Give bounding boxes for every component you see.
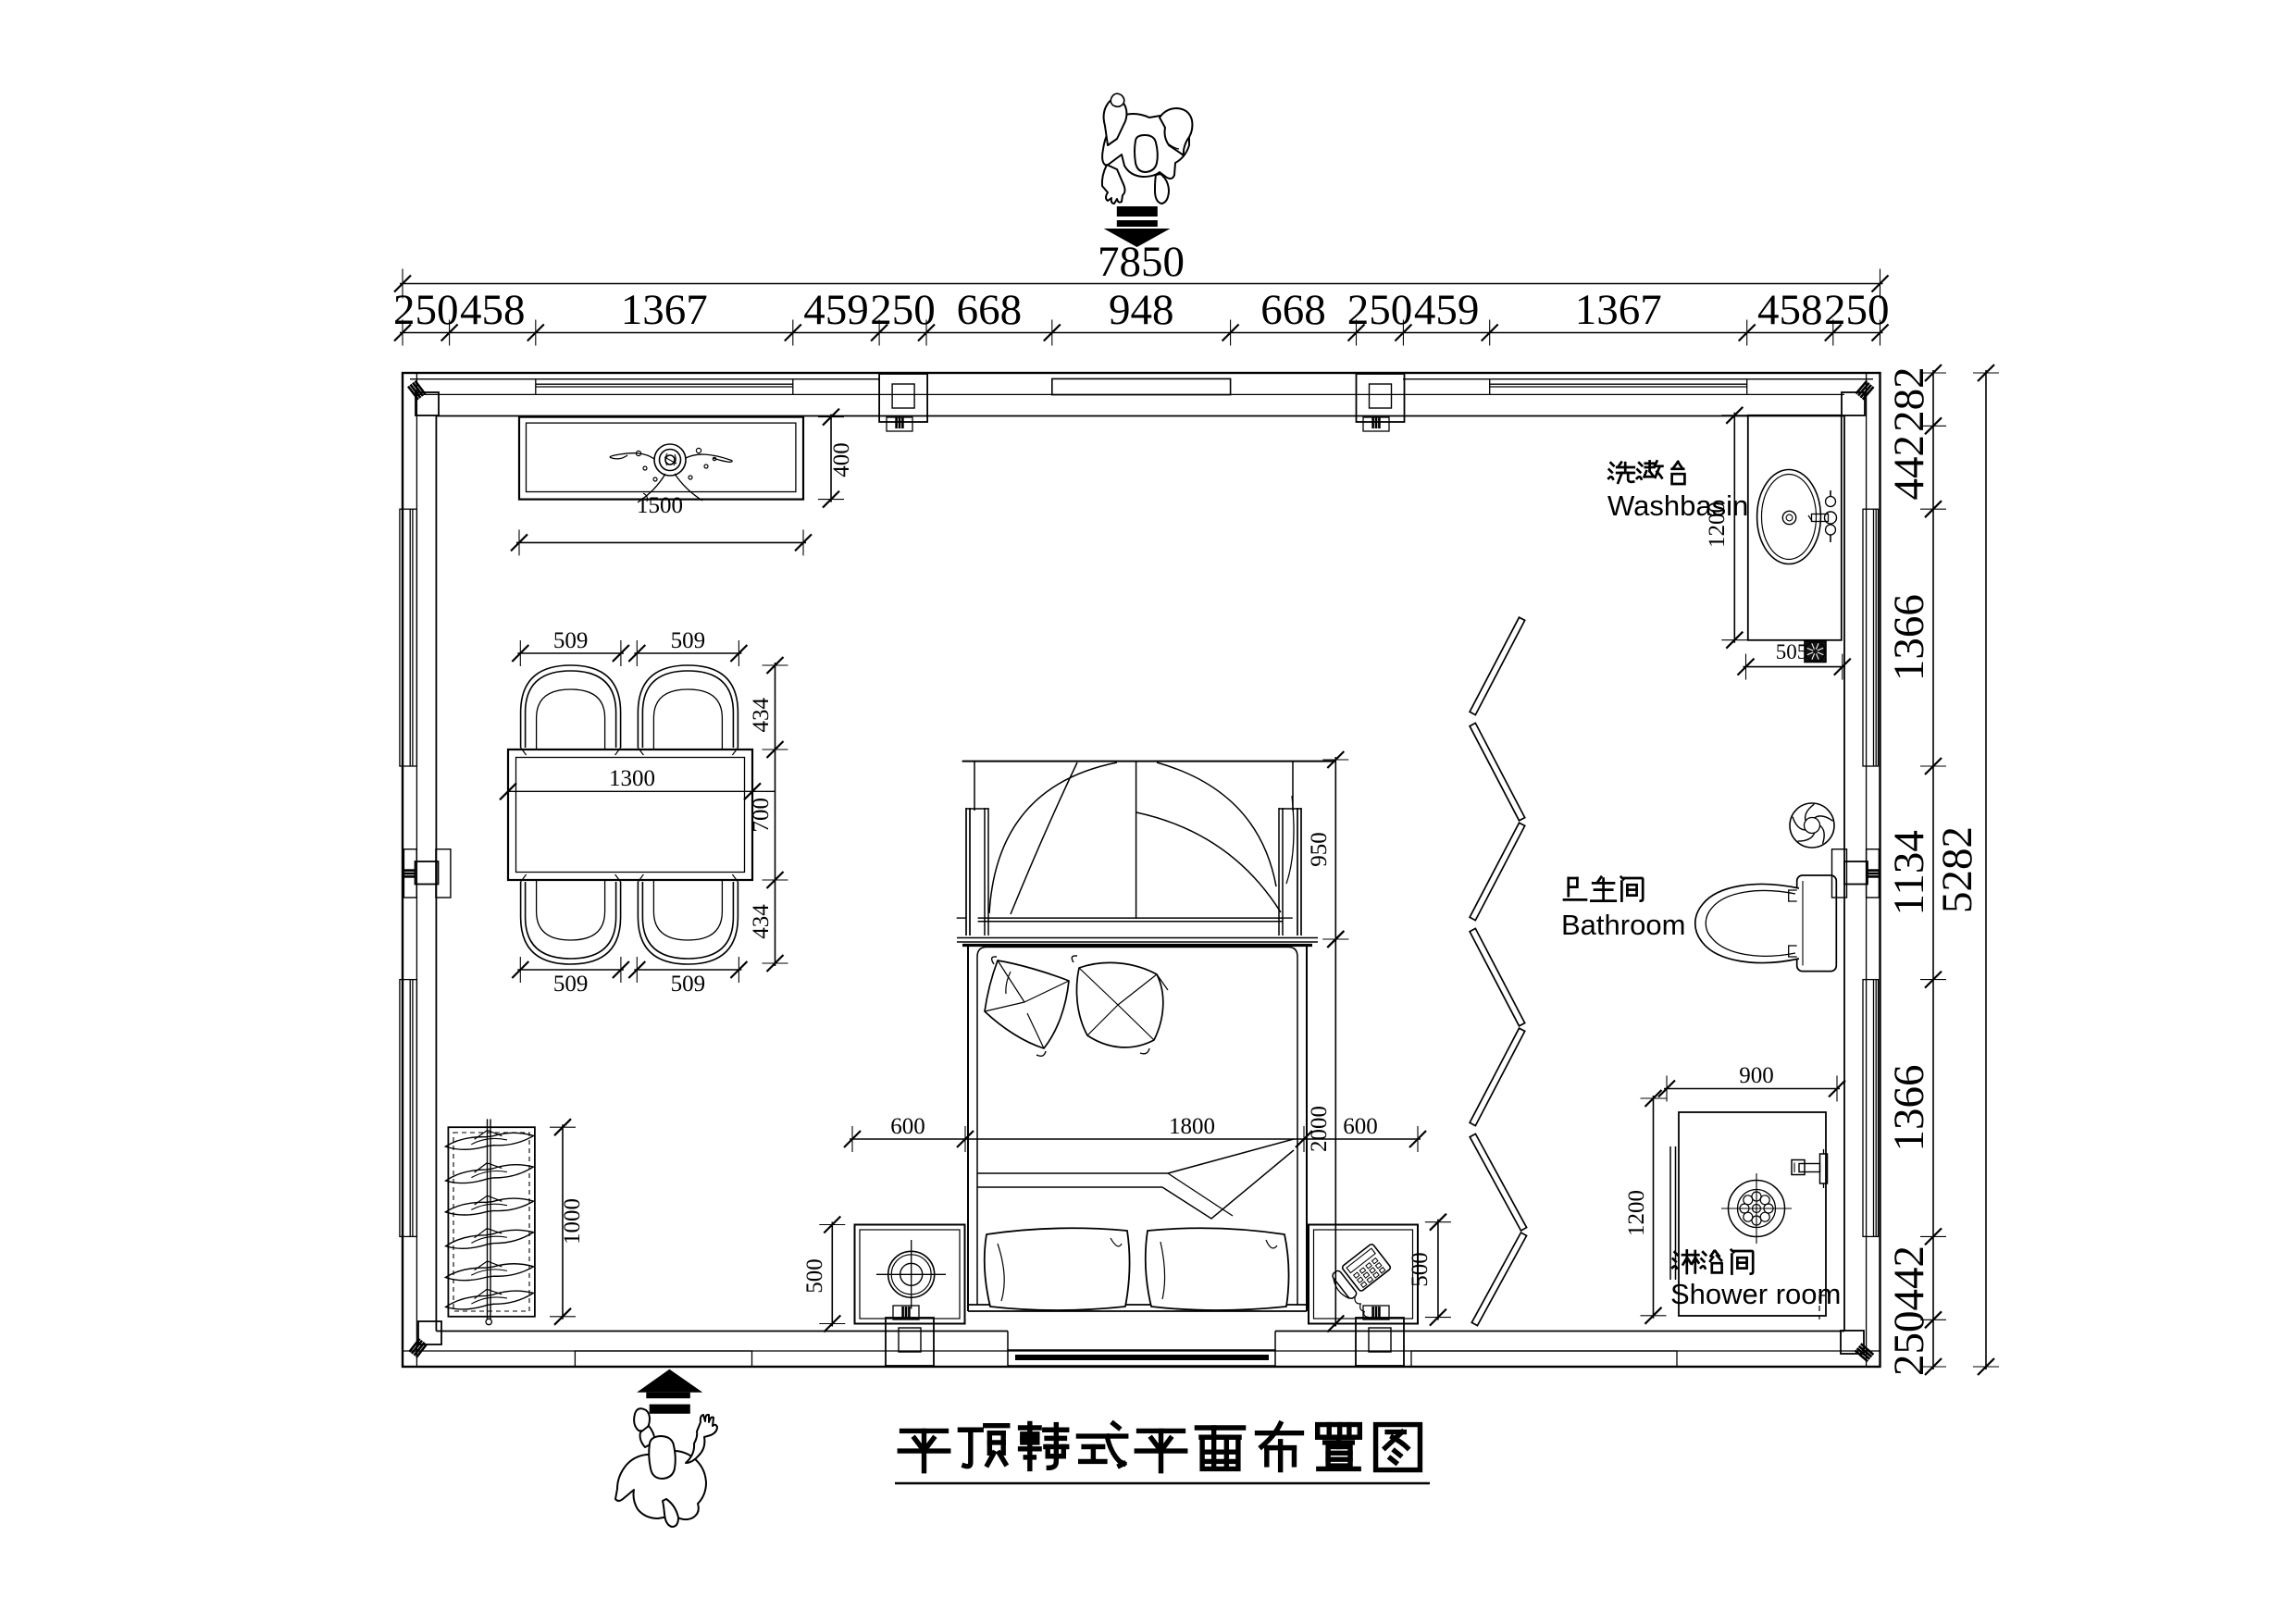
svg-text:434: 434 bbox=[749, 904, 774, 939]
svg-text:1500: 1500 bbox=[637, 493, 683, 518]
svg-text:668: 668 bbox=[1260, 286, 1326, 334]
svg-text:442: 442 bbox=[1885, 1245, 1933, 1311]
svg-text:Bathroom: Bathroom bbox=[1561, 909, 1685, 941]
svg-text:1134: 1134 bbox=[1885, 830, 1933, 915]
svg-text:459: 459 bbox=[803, 286, 869, 334]
svg-text:668: 668 bbox=[957, 286, 1023, 334]
svg-text:1367: 1367 bbox=[621, 286, 708, 334]
svg-text:948: 948 bbox=[1109, 286, 1174, 334]
svg-text:7850: 7850 bbox=[1098, 238, 1185, 286]
svg-text:282: 282 bbox=[1885, 366, 1933, 432]
svg-text:2000: 2000 bbox=[1307, 1106, 1332, 1152]
svg-text:1366: 1366 bbox=[1885, 1065, 1933, 1152]
svg-text:1200: 1200 bbox=[1705, 502, 1730, 548]
svg-text:400: 400 bbox=[829, 442, 854, 477]
svg-text:250: 250 bbox=[1824, 286, 1890, 334]
svg-text:950: 950 bbox=[1307, 832, 1332, 867]
svg-text:442: 442 bbox=[1885, 435, 1933, 501]
svg-text:458: 458 bbox=[460, 286, 526, 334]
svg-text:5282: 5282 bbox=[1933, 826, 1981, 913]
svg-text:250: 250 bbox=[1885, 1310, 1933, 1376]
svg-text:509: 509 bbox=[671, 972, 706, 997]
svg-text:Shower room: Shower room bbox=[1670, 1278, 1841, 1310]
svg-text:509: 509 bbox=[553, 972, 589, 997]
svg-text:1300: 1300 bbox=[609, 766, 655, 791]
svg-text:250: 250 bbox=[1347, 286, 1413, 334]
svg-text:509: 509 bbox=[553, 628, 589, 653]
svg-text:1367: 1367 bbox=[1575, 286, 1662, 334]
svg-text:505: 505 bbox=[1776, 640, 1808, 663]
svg-text:1366: 1366 bbox=[1885, 594, 1933, 681]
svg-text:600: 600 bbox=[1343, 1114, 1378, 1139]
svg-text:500: 500 bbox=[1408, 1252, 1433, 1287]
svg-text:509: 509 bbox=[671, 628, 706, 653]
svg-text:459: 459 bbox=[1414, 286, 1480, 334]
svg-text:900: 900 bbox=[1739, 1063, 1774, 1088]
svg-text:250: 250 bbox=[393, 286, 459, 334]
svg-text:458: 458 bbox=[1757, 286, 1823, 334]
svg-text:500: 500 bbox=[802, 1258, 827, 1294]
svg-text:700: 700 bbox=[749, 798, 774, 833]
svg-text:1000: 1000 bbox=[560, 1198, 585, 1245]
svg-text:250: 250 bbox=[870, 286, 936, 334]
svg-text:600: 600 bbox=[890, 1114, 925, 1139]
svg-text:1200: 1200 bbox=[1624, 1190, 1649, 1236]
svg-text:1800: 1800 bbox=[1169, 1114, 1215, 1139]
svg-text:434: 434 bbox=[749, 697, 774, 732]
